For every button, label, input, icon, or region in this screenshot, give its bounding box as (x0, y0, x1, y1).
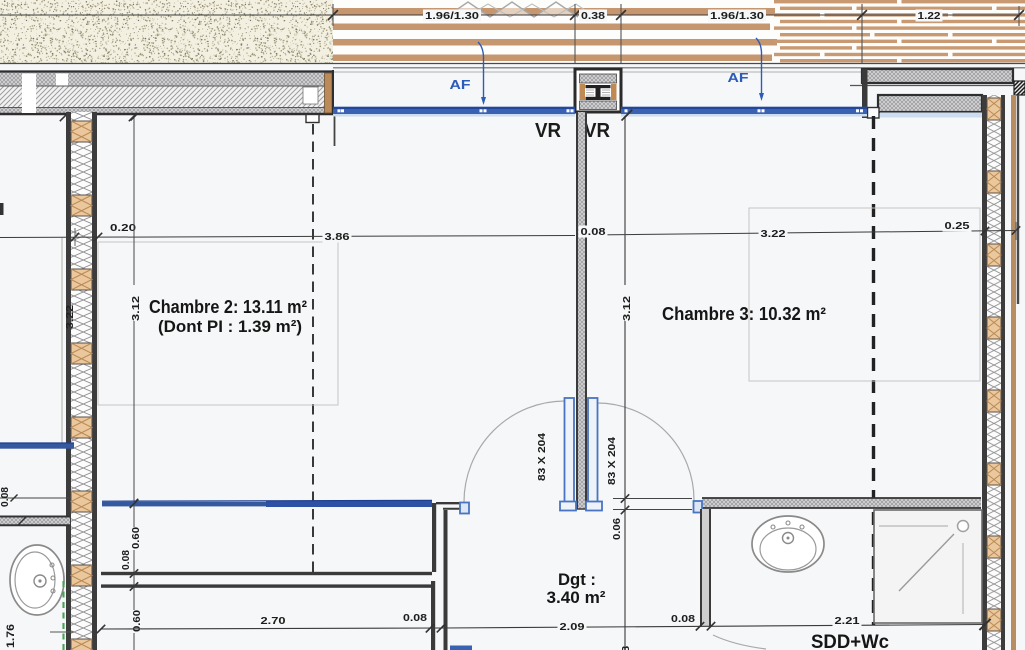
svg-text:1.96/1.30: 1.96/1.30 (710, 10, 764, 22)
svg-text:0.06: 0.06 (611, 518, 623, 540)
svg-text:SDD+Wc: SDD+Wc (811, 632, 889, 650)
svg-text:3.22: 3.22 (64, 305, 76, 329)
svg-text:0.08: 0.08 (403, 612, 427, 624)
svg-text:83 X 204: 83 X 204 (606, 437, 618, 485)
svg-text:0.60: 0.60 (130, 527, 142, 549)
svg-text:0.08: 0.08 (120, 550, 132, 570)
svg-text:3.22: 3.22 (761, 228, 786, 240)
svg-text:0.25: 0.25 (945, 220, 970, 232)
svg-text:VR: VR (535, 120, 562, 142)
svg-text:83 X 204: 83 X 204 (536, 433, 548, 481)
svg-text:1.76: 1.76 (5, 624, 17, 648)
svg-text:0.08: 0.08 (0, 487, 11, 507)
svg-text:1.96/1.30: 1.96/1.30 (425, 10, 479, 22)
svg-text:2.09: 2.09 (560, 621, 585, 633)
svg-text:Dgt :: Dgt : (558, 570, 596, 589)
svg-text:2.21: 2.21 (835, 615, 860, 627)
svg-text:3.86: 3.86 (325, 231, 350, 243)
svg-text:(Dont PI : 1.39 m²): (Dont PI : 1.39 m²) (158, 317, 302, 336)
svg-text:0.08: 0.08 (620, 646, 632, 650)
svg-text:VR: VR (584, 120, 611, 142)
svg-text:Chambre 3: 10.32 m²: Chambre 3: 10.32 m² (662, 304, 826, 324)
svg-text:0.08: 0.08 (581, 226, 606, 238)
svg-text:2.70: 2.70 (261, 615, 286, 627)
svg-text:3.12: 3.12 (130, 296, 142, 321)
svg-text:0.20: 0.20 (110, 222, 136, 234)
svg-text:Chambre 2: 13.11 m²: Chambre 2: 13.11 m² (149, 297, 307, 317)
svg-text:AF: AF (450, 77, 471, 92)
svg-text:0.08: 0.08 (671, 613, 695, 625)
svg-text:3.40 m²: 3.40 m² (547, 588, 606, 607)
svg-text:3.12: 3.12 (621, 296, 633, 321)
svg-text:AF: AF (728, 70, 749, 85)
svg-text:0.38: 0.38 (581, 10, 605, 22)
svg-text:1.22: 1.22 (918, 10, 941, 22)
